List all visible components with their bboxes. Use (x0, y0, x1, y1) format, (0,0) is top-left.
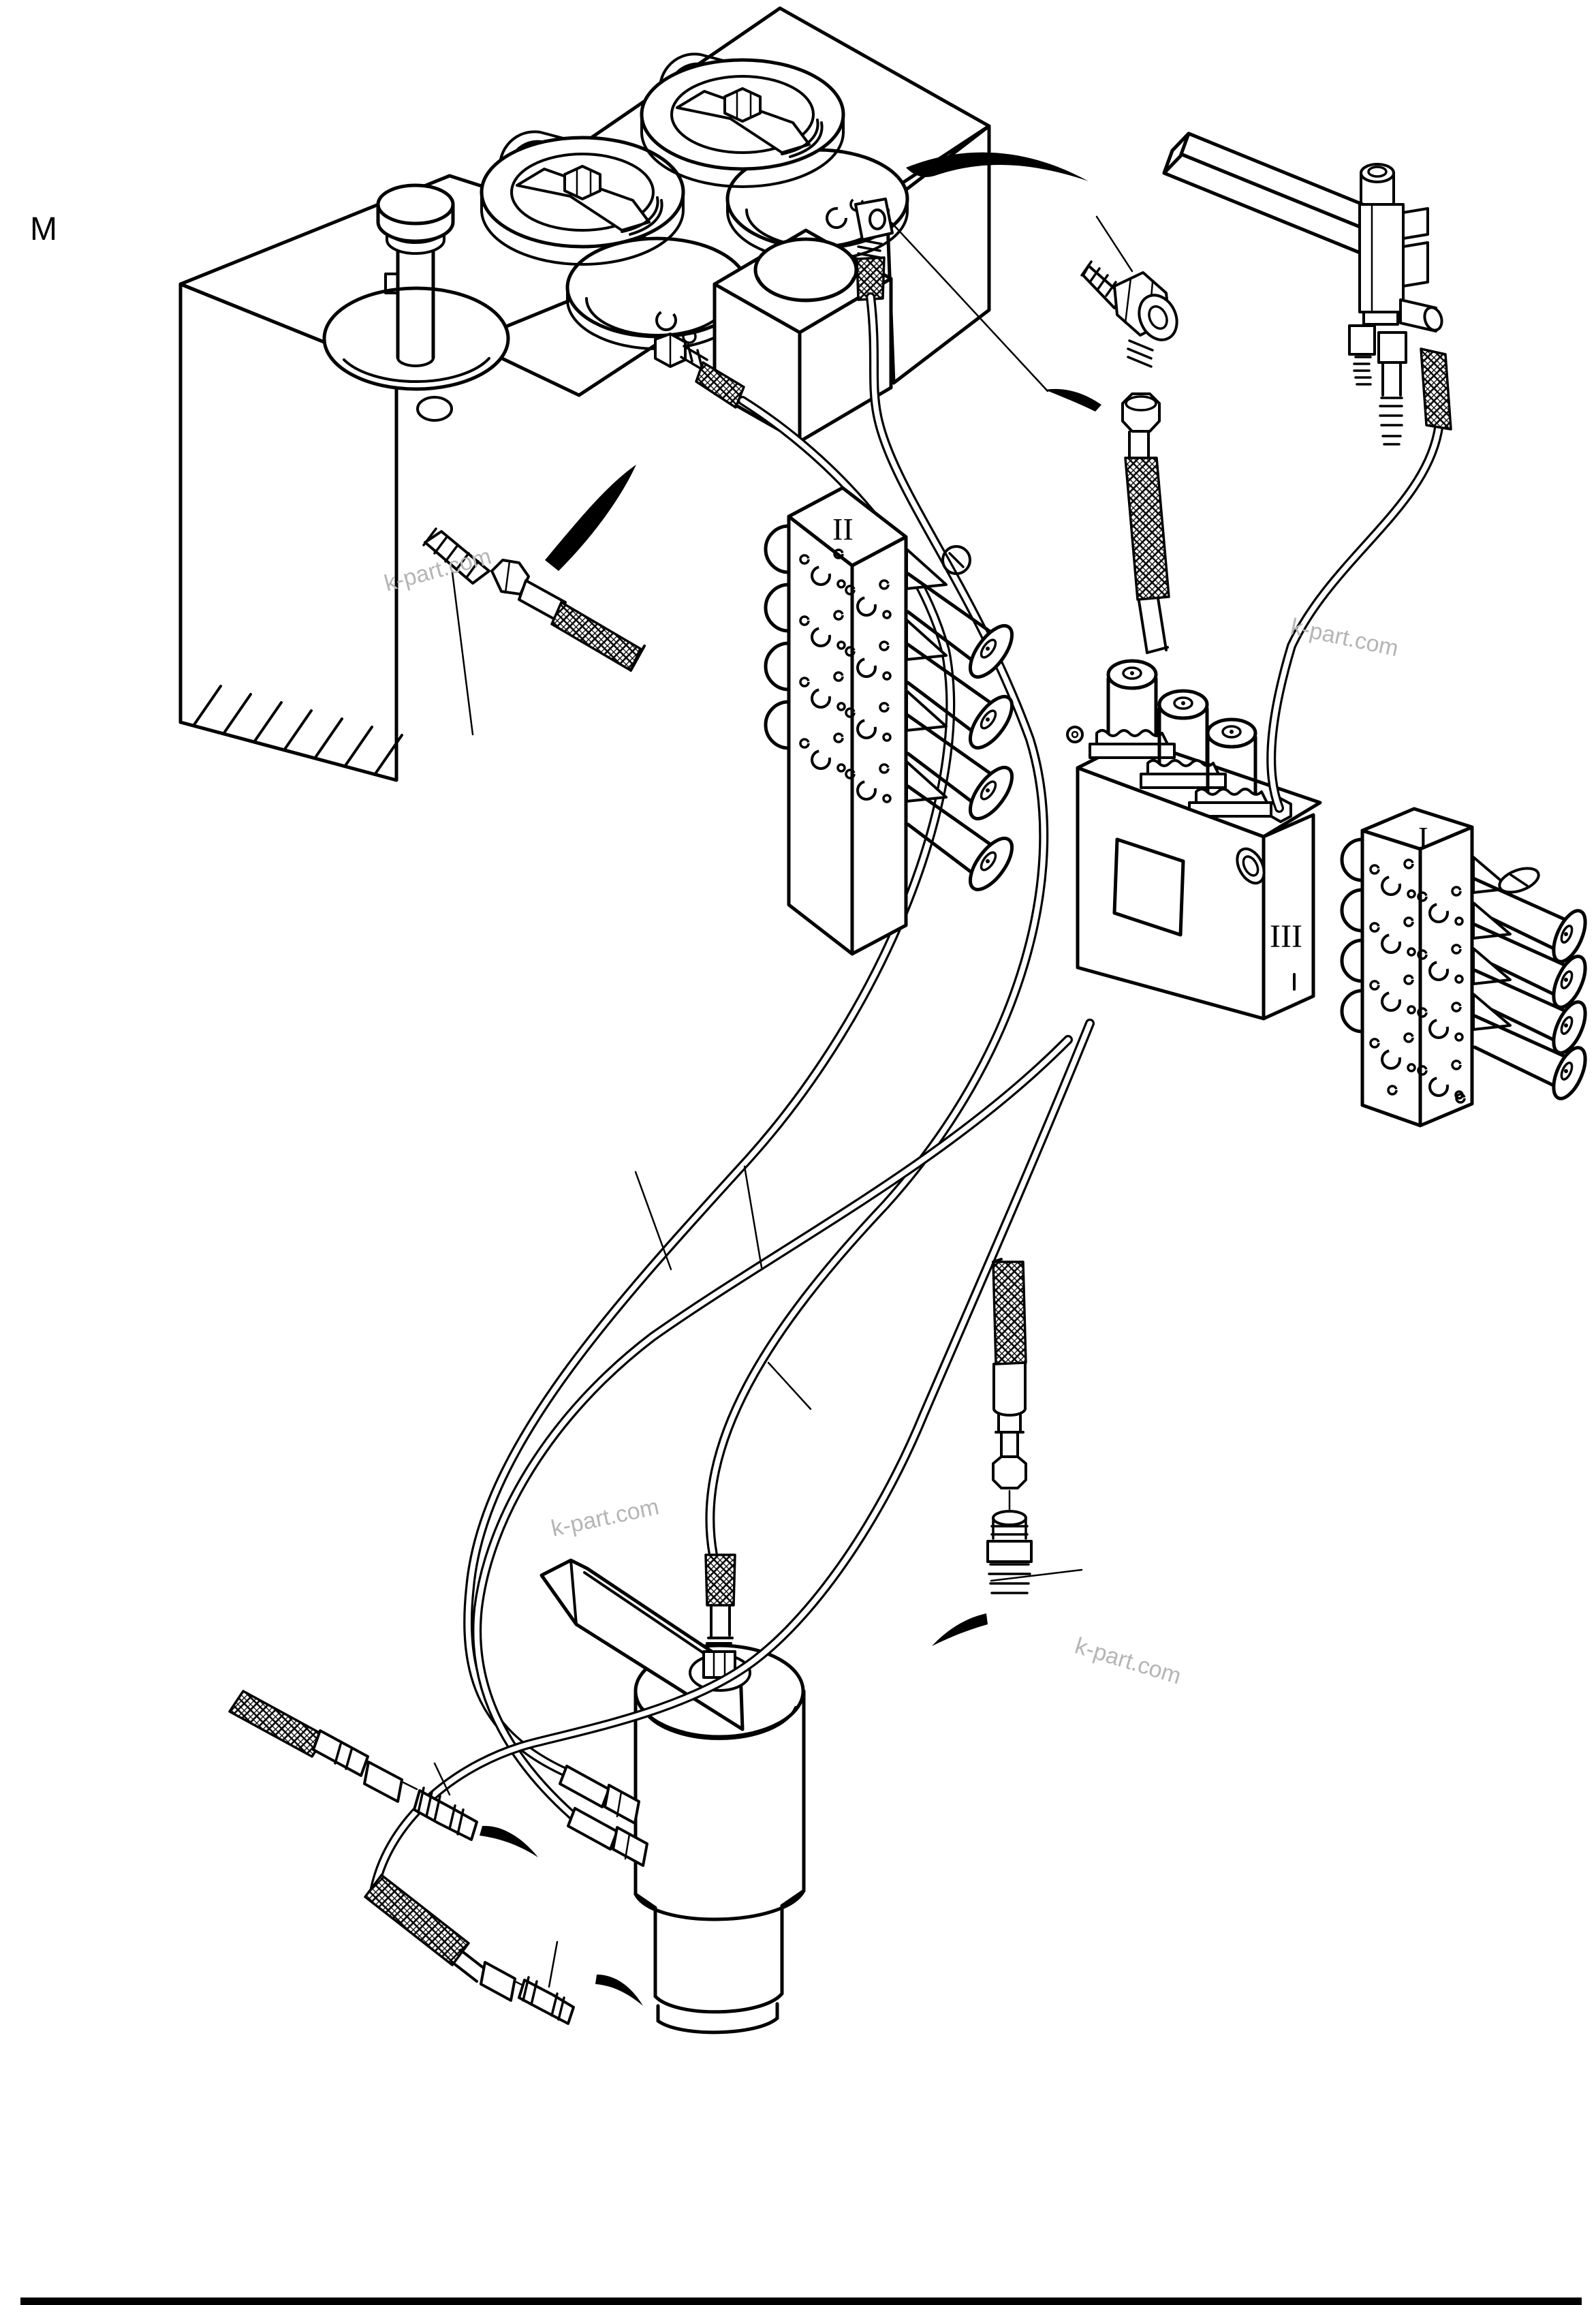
fitting-nut (1379, 332, 1406, 362)
leader-line (991, 1570, 1082, 1581)
section-label: M (30, 211, 57, 247)
valve-block-i-label: I (1418, 821, 1428, 854)
tank-port-plug (418, 397, 452, 420)
callout-arrow (480, 1826, 538, 1857)
leader-line (452, 572, 473, 734)
watermark: k-part.com (549, 1494, 661, 1542)
threaded-adapter (519, 1977, 574, 2024)
callout-arrow (932, 1613, 988, 1646)
watermark: k-part.com (1288, 614, 1401, 662)
exploded-tank-fitting (424, 465, 644, 734)
callout-arrow-sender (1045, 389, 1101, 412)
callout-arrow (595, 1975, 643, 2006)
breather-recess (324, 288, 508, 389)
leader-line (636, 1172, 671, 1269)
manifold-iii-label: III (1270, 918, 1302, 955)
watermark: k-part.com (1072, 1633, 1185, 1689)
leader-line (745, 1166, 762, 1267)
threaded-adapter (414, 1788, 477, 1840)
hose-assembly-4 (375, 1023, 1090, 1889)
leader-line (1097, 217, 1132, 271)
control-valve-block-I (1342, 809, 1592, 1126)
relief-valve-assembly (1164, 134, 1451, 444)
parts-diagram-page: M II III I k-part.com k-part.com k-part.… (0, 0, 1596, 2305)
valve-block-ii-label: II (832, 512, 854, 546)
pressure-sender-fitting (1082, 262, 1184, 653)
exploded-vertical-hose (932, 1259, 1031, 1646)
filter-inlet-fitting (704, 1555, 735, 1677)
callout-arrow (545, 465, 636, 571)
exploded-hose-group-2 (365, 1875, 643, 2024)
leader-line (549, 1942, 557, 1987)
control-valve-block-II (766, 488, 1020, 954)
hose-nut (993, 1457, 1026, 1488)
page-bottom-rule (20, 2298, 1582, 2305)
leader-line (768, 1363, 811, 1409)
fitting-nut (1349, 326, 1375, 354)
solenoid-manifold-III (1067, 661, 1320, 1019)
